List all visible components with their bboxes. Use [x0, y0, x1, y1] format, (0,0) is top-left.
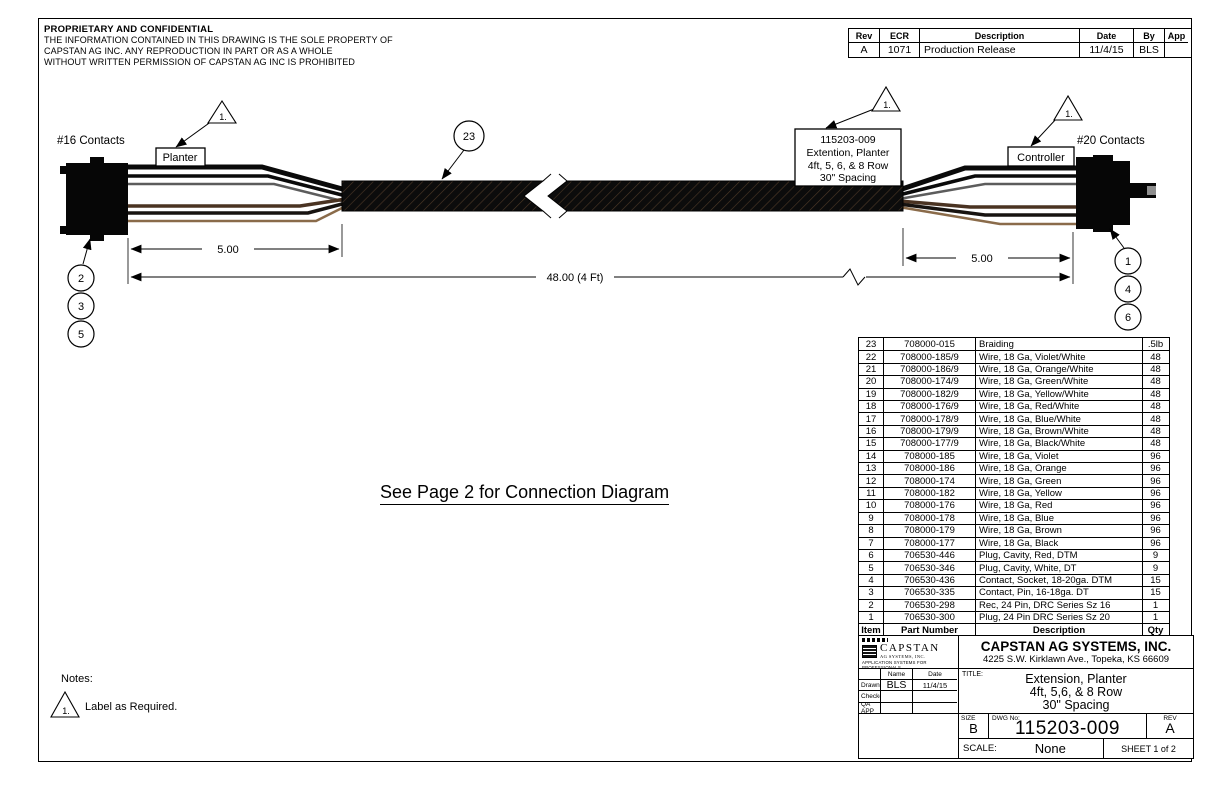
item-balloons: 23 2 3 5 1 4 6 — [68, 121, 1141, 347]
bom-cell: 708000-176/9 — [883, 401, 975, 412]
note-flag-number: 1. — [219, 112, 227, 122]
controller-label: Controller — [1017, 152, 1065, 164]
balloon-4: 4 — [1115, 276, 1141, 302]
bom-row: 17708000-178/9Wire, 18 Ga, Blue/White48 — [859, 412, 1169, 424]
bom-cell: 8 — [859, 525, 883, 536]
bom-cell: 21 — [859, 364, 883, 375]
bom-cell: Wire, 18 Ga, Yellow/White — [975, 389, 1142, 400]
drawing-title-line: 30" Spacing — [959, 699, 1193, 712]
break-tick — [543, 211, 551, 218]
bom-cell: 7 — [859, 538, 883, 549]
company-name: CAPSTAN AG SYSTEMS, INC. — [981, 639, 1172, 654]
bom-cell: 1 — [1142, 600, 1168, 611]
bom-cell: 14 — [859, 451, 883, 462]
bom-cell: Rec, 24 Pin, DRC Series Sz 16 — [975, 600, 1142, 611]
title-label: TITLE: — [962, 671, 983, 678]
bom-cell: 708000-177 — [883, 538, 975, 549]
balloon-number: 6 — [1125, 312, 1131, 324]
bom-row: 15708000-177/9Wire, 18 Ga, Black/White48 — [859, 437, 1169, 449]
bom-cell: 706530-300 — [883, 612, 975, 623]
note-flag-number: 1. — [883, 100, 891, 110]
bom-cell: 9 — [1142, 562, 1168, 573]
bom-cell: 708000-179 — [883, 525, 975, 536]
bom-cell: Wire, 18 Ga, Blue/White — [975, 413, 1142, 424]
bom-cell: 708000-178 — [883, 513, 975, 524]
bom-cell: Wire, 18 Ga, Violet/White — [975, 351, 1142, 362]
cable-label-line: Extention, Planter — [807, 147, 890, 159]
break-tick — [559, 174, 567, 181]
bom-cell: Wire, 18 Ga, Brown — [975, 525, 1142, 536]
sheet-cell: SHEET 1 of 2 — [1103, 738, 1194, 759]
bom-cell: 708000-179/9 — [883, 426, 975, 437]
connector-body — [1096, 161, 1130, 225]
bom-cell: 18 — [859, 401, 883, 412]
bom-cell: 17 — [859, 413, 883, 424]
signoff-drawn-name: BLS — [881, 680, 913, 691]
cable-label-line: 115203-009 — [820, 134, 875, 146]
scale-label: SCALE: — [963, 743, 997, 754]
connector-step — [1093, 155, 1113, 163]
bom-cell: 15 — [1142, 575, 1168, 586]
wire-brown — [128, 199, 346, 206]
bom-cell: 1 — [1142, 612, 1168, 623]
bom-cell: 3 — [859, 587, 883, 598]
leader-controller-flag — [1031, 118, 1057, 146]
planter-label-box: Planter — [156, 148, 205, 166]
bom-cell: Plug, Cavity, Red, DTM — [975, 550, 1142, 561]
bom-cell: 48 — [1142, 438, 1168, 449]
balloon-2: 2 — [68, 265, 94, 291]
bom-cell: 9 — [1142, 550, 1168, 561]
title-block: CAPSTAN AG SYSTEMS, INC. APPLICATION SYS… — [858, 635, 1192, 757]
balloon-number: 23 — [463, 131, 475, 143]
cable-label-line: 4ft, 5, 6, & 8 Row — [808, 160, 889, 172]
notes-heading: Notes: — [61, 673, 93, 685]
bom-cell: 15 — [1142, 587, 1168, 598]
bom-cell: 706530-335 — [883, 587, 975, 598]
bom-row: 19708000-182/9Wire, 18 Ga, Yellow/White4… — [859, 388, 1169, 400]
capstan-logo: CAPSTAN AG SYSTEMS, INC. APPLICATION SYS… — [858, 635, 959, 669]
scale-cell: SCALE: None — [958, 738, 1104, 759]
bom-cell: 1 — [859, 612, 883, 623]
bom-cell: Wire, 18 Ga, Brown/White — [975, 426, 1142, 437]
bom-cell: 9 — [859, 513, 883, 524]
bom-cell: 708000-182 — [883, 488, 975, 499]
bom-row: 11708000-182Wire, 18 Ga, Yellow96 — [859, 487, 1169, 499]
bom-cell: 708000-174/9 — [883, 376, 975, 387]
bom-cell: 96 — [1142, 500, 1168, 511]
bom-cell: 48 — [1142, 413, 1168, 424]
note-1-text: Label as Required. — [85, 701, 177, 713]
wire-bundle-right — [899, 168, 1082, 224]
bom-row: 13708000-186Wire, 18 Ga, Orange96 — [859, 462, 1169, 474]
title-block-empty-cell — [858, 713, 959, 759]
dim-overall-label: 48.00 (4 Ft) — [547, 272, 604, 284]
bom-cell: 48 — [1142, 376, 1168, 387]
bom-cell: 708000-015 — [883, 338, 975, 350]
bom-cell: Wire, 18 Ga, Orange — [975, 463, 1142, 474]
balloon-5: 5 — [68, 321, 94, 347]
bom-row: 18708000-176/9Wire, 18 Ga, Red/White48 — [859, 400, 1169, 412]
note-flag-number: 1. — [1065, 109, 1073, 119]
leader-balloons-left — [83, 239, 90, 264]
bom-cell: 96 — [1142, 488, 1168, 499]
bom-cell: Wire, 18 Ga, Green — [975, 475, 1142, 486]
signoff-checked-date — [913, 691, 957, 702]
bom-row: 10708000-176Wire, 18 Ga, Red96 — [859, 499, 1169, 511]
bom-cell: 706530-346 — [883, 562, 975, 573]
cable-label-line: 30" Spacing — [820, 172, 876, 184]
planter-connector-16pin — [60, 157, 128, 241]
signoff-name-header: Name — [881, 669, 913, 680]
bom-cell: 96 — [1142, 513, 1168, 524]
bom-cell: Wire, 18 Ga, Black — [975, 538, 1142, 549]
bom-cell: Wire, 18 Ga, Red — [975, 500, 1142, 511]
connector-flange — [1076, 157, 1098, 229]
planter-label: Planter — [163, 152, 198, 164]
bom-row: 8708000-179Wire, 18 Ga, Brown96 — [859, 524, 1169, 536]
braid-left-segment — [342, 181, 543, 211]
size-value: B — [959, 721, 988, 736]
bom-cell: 708000-174 — [883, 475, 975, 486]
bom-cell: Plug, Cavity, White, DT — [975, 562, 1142, 573]
bom-cell: 708000-178/9 — [883, 413, 975, 424]
bom-cell: Wire, 18 Ga, Blue — [975, 513, 1142, 524]
leader-balloon-23 — [442, 150, 464, 179]
bom-cell: Wire, 18 Ga, Red/White — [975, 401, 1142, 412]
bom-rows: 23708000-015Braiding.5lb22708000-185/9Wi… — [859, 338, 1169, 623]
bom-cell: Plug, 24 Pin DRC Series Sz 20 — [975, 612, 1142, 623]
signoff-drawn-date: 11/4/15 — [913, 680, 957, 691]
bom-cell: 6 — [859, 550, 883, 561]
bom-cell: 10 — [859, 500, 883, 511]
bom-cell: 708000-185 — [883, 451, 975, 462]
leader-planter-flag — [176, 121, 212, 147]
see-page-2-note: See Page 2 for Connection Diagram — [380, 482, 669, 505]
bom-cell: 13 — [859, 463, 883, 474]
bom-cell: 23 — [859, 338, 883, 350]
signoff-checked-name — [881, 691, 913, 702]
signoff-drawn-label: Drawn — [859, 680, 881, 691]
bom-cell: 48 — [1142, 401, 1168, 412]
bom-cell: 708000-176 — [883, 500, 975, 511]
connector-notch — [90, 157, 104, 164]
bom-row: 14708000-185Wire, 18 Ga, Violet96 — [859, 450, 1169, 462]
bom-row: 16708000-179/9Wire, 18 Ga, Brown/White48 — [859, 425, 1169, 437]
dim-right-label: 5.00 — [971, 253, 992, 265]
bom-cell: 4 — [859, 575, 883, 586]
leader-balloons-right — [1110, 229, 1124, 248]
connector-notch — [90, 234, 104, 241]
controller-connector-20pin — [1076, 155, 1156, 232]
bom-cell: 706530-436 — [883, 575, 975, 586]
bom-cell: 706530-446 — [883, 550, 975, 561]
bom-cell: 48 — [1142, 426, 1168, 437]
bom-cell: 48 — [1142, 389, 1168, 400]
bom-cell: 706530-298 — [883, 600, 975, 611]
bom-row: 3706530-335Contact, Pin, 16-18ga. DT15 — [859, 586, 1169, 598]
balloon-23: 23 — [454, 121, 484, 151]
bom-row: 21708000-186/9Wire, 18 Ga, Orange/White4… — [859, 363, 1169, 375]
bom-row: 7708000-177Wire, 18 Ga, Black96 — [859, 537, 1169, 549]
bom-cell: 708000-182/9 — [883, 389, 975, 400]
connector-notch — [60, 226, 67, 234]
balloon-number: 4 — [1125, 284, 1131, 296]
bom-cell: 16 — [859, 426, 883, 437]
bom-cell: 96 — [1142, 538, 1168, 549]
balloon-1: 1 — [1115, 248, 1141, 274]
bom-cell: 48 — [1142, 364, 1168, 375]
wire-bundle-left — [128, 167, 346, 221]
notes-flag-number: 1. — [62, 706, 70, 716]
connector-body — [66, 163, 128, 235]
bom-row: 4706530-436Contact, Socket, 18-20ga. DTM… — [859, 574, 1169, 586]
bom-cell: Contact, Socket, 18-20ga. DTM — [975, 575, 1142, 586]
company-info: CAPSTAN AG SYSTEMS, INC. 4225 S.W. Kirkl… — [958, 635, 1194, 669]
bom-row: 20708000-174/9Wire, 18 Ga, Green/White48 — [859, 375, 1169, 387]
bom-row: 9708000-178Wire, 18 Ga, Blue96 — [859, 512, 1169, 524]
bom-cell: Wire, 18 Ga, Black/White — [975, 438, 1142, 449]
connector-latch-tip — [1147, 186, 1156, 195]
bom-cell: 48 — [1142, 351, 1168, 362]
dwg-number-cell: DWG No: 115203-009 — [988, 713, 1147, 739]
balloon-3: 3 — [68, 293, 94, 319]
wire-gray — [899, 184, 1082, 199]
size-cell: SIZE B — [958, 713, 989, 739]
bom-row: 23708000-015Braiding.5lb — [859, 338, 1169, 350]
bom-cell: 22 — [859, 351, 883, 362]
engineering-drawing-sheet: PROPRIETARY AND CONFIDENTIAL THE INFORMA… — [0, 0, 1224, 792]
rev-value: A — [1147, 720, 1193, 736]
connector-step — [1093, 224, 1113, 232]
bom-row: 2706530-298Rec, 24 Pin, DRC Series Sz 16… — [859, 599, 1169, 611]
bom-cell: 11 — [859, 488, 883, 499]
signoff-checked-label: Checked — [859, 691, 881, 702]
balloon-number: 1 — [1125, 256, 1131, 268]
break-tick — [543, 174, 551, 181]
bom-cell: 96 — [1142, 525, 1168, 536]
balloon-number: 2 — [78, 273, 84, 285]
logo-name: CAPSTAN — [880, 643, 940, 654]
bom-cell: 96 — [1142, 463, 1168, 474]
leader-cable-flag — [826, 109, 874, 128]
connector-notch — [60, 166, 67, 174]
bom-cell: 708000-185/9 — [883, 351, 975, 362]
bom-cell: Wire, 18 Ga, Yellow — [975, 488, 1142, 499]
logo-subtitle: AG SYSTEMS, INC. — [880, 654, 940, 659]
cable-id-label-box: 115203-009 Extention, Planter 4ft, 5, 6,… — [795, 129, 901, 186]
bill-of-materials-table: 23708000-015Braiding.5lb22708000-185/9Wi… — [858, 337, 1170, 638]
signoff-table: Name Date Drawn BLS 11/4/15 Checked QA A… — [858, 668, 959, 714]
bom-cell: Wire, 18 Ga, Violet — [975, 451, 1142, 462]
balloon-number: 5 — [78, 329, 84, 341]
left-contacts-label: #16 Contacts — [57, 135, 125, 147]
drawing-title-cell: TITLE: Extension, Planter 4ft, 5,6, & 8 … — [958, 668, 1194, 714]
bom-row: 22708000-185/9Wire, 18 Ga, Violet/White4… — [859, 350, 1169, 362]
signoff-corner — [859, 669, 881, 680]
bom-cell: 708000-186/9 — [883, 364, 975, 375]
bom-cell: 2 — [859, 600, 883, 611]
scale-value: None — [1035, 741, 1066, 756]
bom-cell: 96 — [1142, 451, 1168, 462]
bom-cell: 15 — [859, 438, 883, 449]
bom-cell: 12 — [859, 475, 883, 486]
bom-cell: Wire, 18 Ga, Orange/White — [975, 364, 1142, 375]
right-contacts-label: #20 Contacts — [1077, 135, 1145, 147]
signoff-date-header: Date — [913, 669, 957, 680]
bom-row: 12708000-174Wire, 18 Ga, Green96 — [859, 474, 1169, 486]
capstan-building-icon — [862, 645, 877, 658]
bom-cell: 5 — [859, 562, 883, 573]
bom-cell: 96 — [1142, 475, 1168, 486]
company-address: 4225 S.W. Kirklawn Ave., Topeka, KS 6660… — [983, 654, 1169, 665]
bom-row: 5706530-346Plug, Cavity, White, DT9 — [859, 561, 1169, 573]
bom-cell: 708000-186 — [883, 463, 975, 474]
bom-cell: 708000-177/9 — [883, 438, 975, 449]
dim-left-label: 5.00 — [217, 244, 238, 256]
bom-cell: Contact, Pin, 16-18ga. DT — [975, 587, 1142, 598]
bom-row: 1706530-300Plug, 24 Pin DRC Series Sz 20… — [859, 611, 1169, 623]
bom-cell: .5lb — [1142, 338, 1168, 350]
controller-label-box: Controller — [1008, 147, 1074, 166]
rev-cell: REV A — [1146, 713, 1194, 739]
balloon-6: 6 — [1115, 304, 1141, 330]
bom-row: 6706530-446Plug, Cavity, Red, DTM9 — [859, 549, 1169, 561]
break-tick — [559, 211, 567, 218]
bom-cell: Wire, 18 Ga, Green/White — [975, 376, 1142, 387]
bom-cell: Braiding — [975, 338, 1142, 350]
balloon-number: 3 — [78, 301, 84, 313]
bom-cell: 19 — [859, 389, 883, 400]
bom-cell: 20 — [859, 376, 883, 387]
